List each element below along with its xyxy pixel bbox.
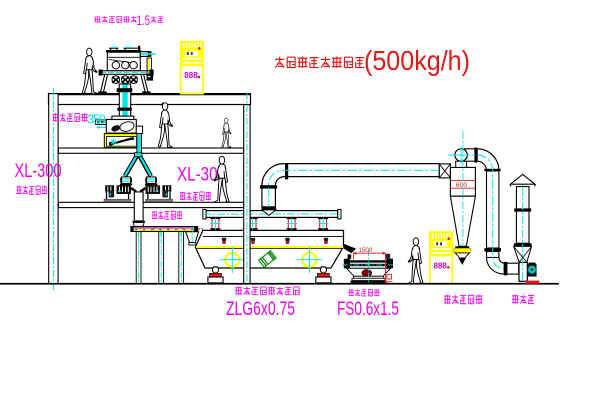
svg-text:(500kg/h): (500kg/h): [364, 45, 470, 76]
svg-text:888: 888: [184, 71, 198, 80]
svg-text:ZLG6x0.75: ZLG6x0.75: [226, 299, 295, 320]
svg-text:888: 888: [434, 261, 448, 270]
svg-text:350: 350: [87, 112, 106, 127]
svg-text:600: 600: [456, 182, 468, 189]
svg-text:1.5: 1.5: [137, 12, 151, 28]
svg-text:FS0.6x1.5: FS0.6x1.5: [337, 299, 399, 320]
svg-text:XL-300: XL-300: [15, 161, 62, 182]
svg-text:1500: 1500: [359, 247, 373, 254]
